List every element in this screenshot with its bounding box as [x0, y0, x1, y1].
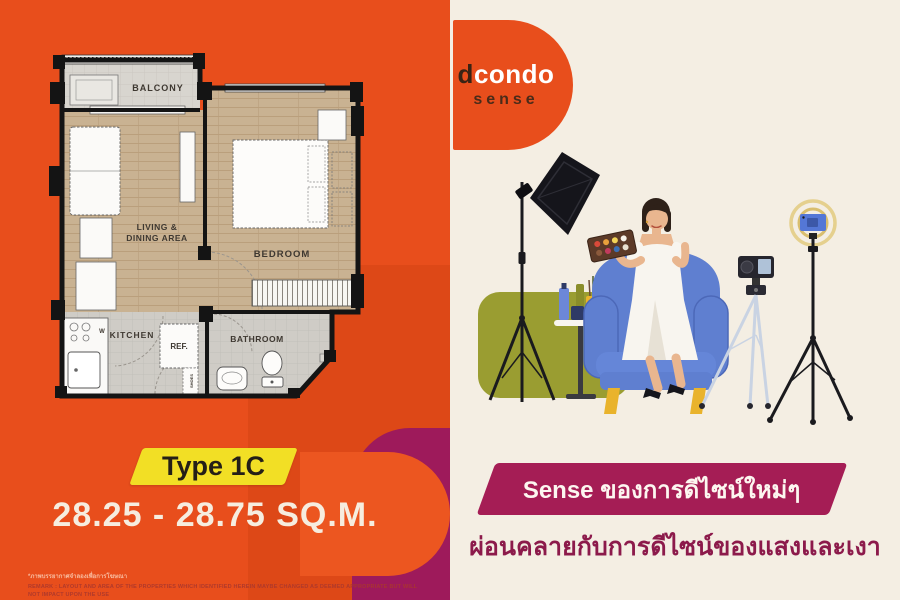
- chair: [80, 218, 112, 258]
- pillow: [308, 146, 325, 182]
- dining-table: [76, 262, 116, 310]
- disclaimer-english: REMARK : LAYOUT AND AREA OF THE PROPERTI…: [28, 583, 428, 600]
- washer-label: W: [99, 329, 105, 335]
- washing-machine: [70, 75, 118, 105]
- bathroom-label: BATHROOM: [230, 334, 283, 344]
- promo-panel: dcondo sense: [450, 0, 900, 600]
- bathroom-sink: [217, 367, 247, 390]
- disclaimer-thai: *ภาพบรรยากาศจำลองเพื่อการโฆษณา: [28, 573, 428, 583]
- bedroom-label: BEDROOM: [254, 249, 311, 260]
- shoes-label: SHOES: [189, 374, 194, 388]
- disclaimer: *ภาพบรรยากาศจำลองเพื่อการโฆษณา REMARK : …: [28, 573, 428, 600]
- kitchen-label: KITCHEN: [110, 330, 155, 340]
- bedside-table: [318, 110, 346, 140]
- poster: BALCONY LIVING & DINING AREA BEDROOM KIT…: [0, 0, 900, 600]
- headline-text: Sense ของการดีไซน์ใหม่ๆ: [523, 470, 800, 509]
- refrigerator-label: REF.: [170, 342, 187, 351]
- unit-type-badge: Type 1C: [129, 448, 297, 485]
- floor-plan-panel: BALCONY LIVING & DINING AREA BEDROOM KIT…: [0, 0, 450, 600]
- toilet: [262, 351, 282, 375]
- living-label-2: DINING AREA: [126, 233, 187, 243]
- pillow: [308, 187, 325, 222]
- headline-badge: Sense ของการดีไซน์ใหม่ๆ: [477, 463, 848, 515]
- subheadline-text: ผ่อนคลายกับการดีไซน์ของแสงและเงา: [450, 527, 900, 567]
- balcony-label: BALCONY: [132, 83, 184, 93]
- unit-type-label: Type 1C: [162, 451, 265, 482]
- living-label-1: LIVING &: [137, 222, 178, 232]
- unit-area: 28.25 - 28.75 SQ.M.: [0, 496, 430, 535]
- wardrobe: [252, 280, 352, 306]
- kitchen-sink: [68, 352, 100, 388]
- tv-console: [180, 132, 195, 202]
- ring-light: [767, 201, 853, 425]
